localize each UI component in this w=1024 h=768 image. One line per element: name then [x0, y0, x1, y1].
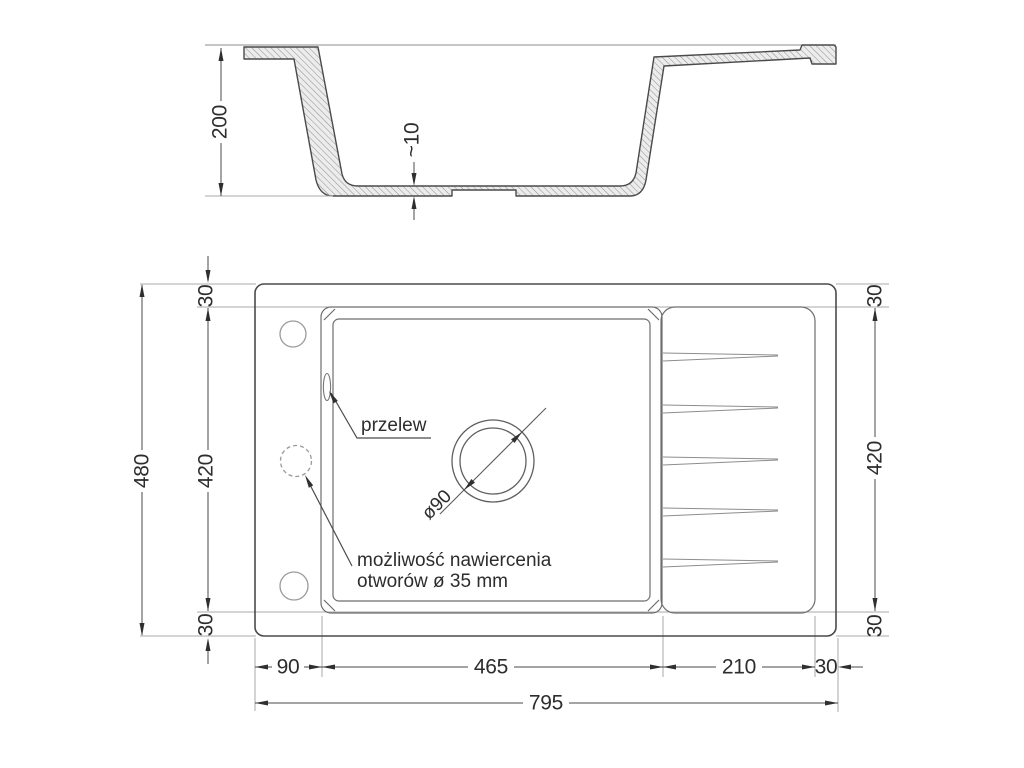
- arrow-up-icon: [219, 48, 224, 61]
- drain: ø90: [418, 408, 546, 524]
- optional-hole-dashed: [281, 446, 312, 477]
- extension-lines: [140, 284, 889, 712]
- tap-hole-top: [280, 321, 306, 347]
- dim-left-offset: 90: [255, 656, 322, 679]
- dim-inner-width-right-value: 420: [864, 441, 887, 475]
- dim-bowl-length: 465: [322, 656, 663, 679]
- arrow-upleft-icon: [305, 475, 313, 488]
- groove-line: [663, 460, 778, 465]
- arrow-down-icon: [140, 623, 145, 636]
- dim-margin-value: 30: [195, 285, 218, 308]
- dim-margin-bottom-edge: 30: [815, 656, 863, 679]
- overflow-label: przelew: [361, 415, 427, 436]
- dim-drainer-length-value: 210: [722, 656, 756, 679]
- arrow-down-icon: [873, 598, 878, 611]
- groove-line: [663, 508, 778, 510]
- arrow-left-icon: [322, 665, 335, 670]
- rim-corner-chamfer: [648, 309, 659, 320]
- tap-hole-bottom: [280, 572, 308, 600]
- dim-inner-width-left-value: 420: [195, 454, 218, 488]
- dim-margin-value: 30: [864, 285, 887, 308]
- section-profile: [244, 45, 836, 196]
- dim-margin-bottom-right: 30: [864, 615, 887, 638]
- dim-drainer-length: 210: [663, 656, 815, 679]
- drainboard: [661, 307, 815, 613]
- drain-diameter-label: ø90: [418, 486, 456, 524]
- rim-corner-chamfer: [324, 309, 335, 320]
- drawing-canvas: 200 ~10: [0, 0, 1024, 768]
- groove-line: [663, 457, 778, 459]
- dim-margin-value: 30: [815, 656, 838, 679]
- dim-thickness-value: ~10: [401, 123, 424, 158]
- arrow-right-icon: [650, 665, 663, 670]
- drain-diameter-line: [440, 408, 546, 514]
- drainboard-grooves: [663, 353, 778, 567]
- groove-line: [663, 353, 778, 355]
- arrow-up-icon: [206, 308, 211, 321]
- dim-overall-length-value: 795: [529, 692, 563, 715]
- arrow-up-icon: [412, 196, 417, 209]
- sink-technical-drawing: 200 ~10: [0, 0, 1024, 768]
- section-view: 200 ~10: [205, 45, 836, 220]
- dim-overall-width-value: 480: [131, 454, 154, 488]
- dim-left-offset-value: 90: [277, 656, 300, 679]
- arrow-up-icon: [873, 308, 878, 321]
- arrow-down-icon: [206, 270, 211, 283]
- arrow-down-icon: [206, 598, 211, 611]
- groove-line: [663, 356, 778, 361]
- arrow-up-icon: [206, 638, 211, 651]
- leader-line: [307, 479, 352, 566]
- dim-bowl-length-value: 465: [474, 656, 508, 679]
- dim-bottom-thickness: ~10: [401, 123, 424, 220]
- dim-margin-value: 30: [195, 614, 218, 637]
- drill-note-callout: możliwość nawiercenia otworów ø 35 mm: [305, 475, 552, 592]
- drill-note-line1: możliwość nawiercenia: [357, 550, 552, 571]
- sink-outline: [255, 284, 836, 636]
- dim-inner-width-left: 420: [195, 308, 218, 611]
- arrow-down-icon: [219, 183, 224, 196]
- dim-margin-bottom-left: 30: [195, 614, 218, 664]
- groove-line: [663, 405, 778, 407]
- drill-note-line2: otworów ø 35 mm: [357, 571, 508, 592]
- arrow-up-icon: [140, 284, 145, 297]
- arrow-right-icon: [802, 665, 815, 670]
- rim-corner-chamfer: [324, 600, 335, 611]
- groove-line: [663, 511, 778, 516]
- groove-line: [663, 408, 778, 413]
- arrow-down-icon: [412, 173, 417, 186]
- arrow-left-icon: [255, 665, 268, 670]
- arrow-right-icon: [309, 665, 322, 670]
- overflow-callout: przelew: [329, 391, 431, 438]
- dim-depth-value: 200: [209, 105, 232, 139]
- dim-margin-top-left: 30: [195, 256, 218, 307]
- arrow-right-icon: [825, 701, 838, 706]
- arrow-left-icon: [838, 665, 851, 670]
- groove-line: [663, 559, 778, 561]
- dim-overall-length: 795: [255, 692, 838, 715]
- overflow-slot: [323, 374, 330, 401]
- rim-corner-chamfer: [648, 600, 659, 611]
- plan-view: ø90 przelew możliwość nawiercenia otworó…: [131, 256, 890, 715]
- groove-line: [663, 562, 778, 567]
- dim-overall-width: 480: [131, 284, 154, 636]
- dim-inner-width-right: 420: [864, 308, 887, 611]
- dim-margin-top-right: 30: [864, 285, 887, 308]
- arrow-left-icon: [255, 701, 268, 706]
- dim-margin-value: 30: [864, 615, 887, 638]
- arrow-left-icon: [663, 665, 676, 670]
